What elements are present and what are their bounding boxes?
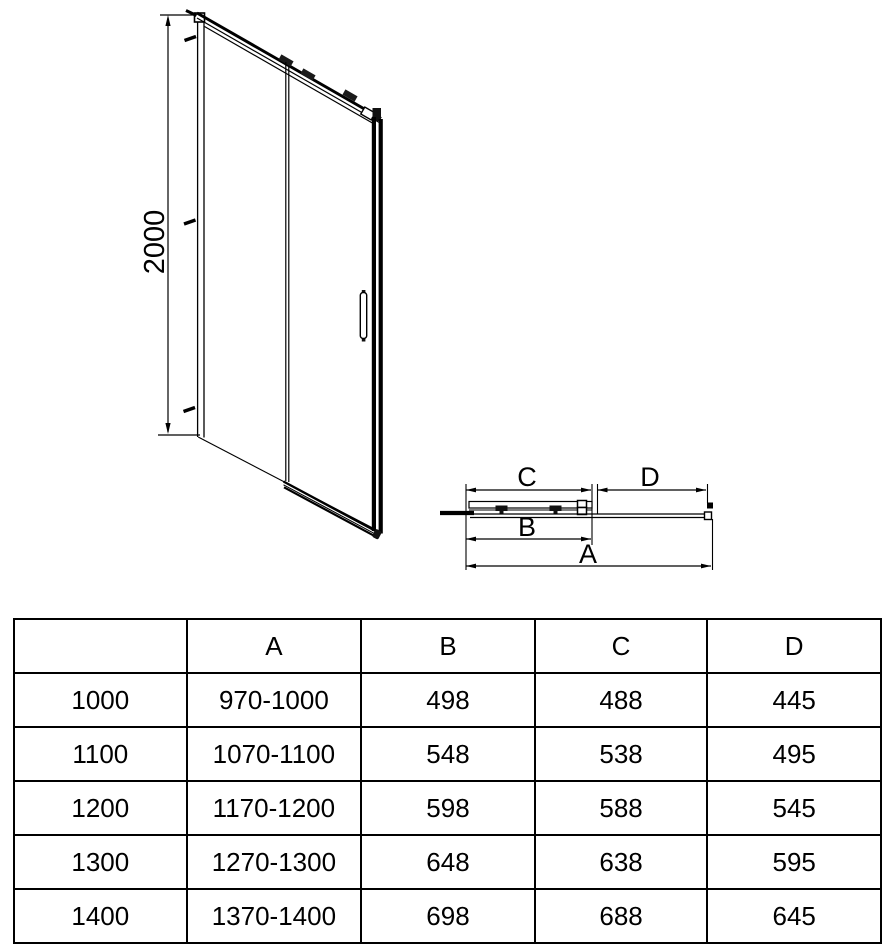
height-dimension-label: 2000 [139, 210, 171, 275]
col-header-c: C [535, 619, 708, 673]
plan-roller-icon [496, 506, 508, 515]
cell-size: 1400 [14, 889, 187, 943]
table-row: 1200 1170-1200 598 588 545 [14, 781, 881, 835]
table-row: 1000 970-1000 498 488 445 [14, 673, 881, 727]
col-header-d: D [707, 619, 881, 673]
door-handle [360, 290, 366, 342]
cell-b: 648 [361, 835, 535, 889]
table-row: 1400 1370-1400 698 688 645 [14, 889, 881, 943]
cell-b: 498 [361, 673, 535, 727]
plan-right-wall-profile [707, 503, 713, 509]
cell-a: 970-1000 [187, 673, 362, 727]
cell-size: 1000 [14, 673, 187, 727]
size-table: A B C D 1000 970-1000 498 488 445 1100 1… [13, 618, 882, 944]
table-header-row: A B C D [14, 619, 881, 673]
table-row: 1300 1270-1300 648 638 595 [14, 835, 881, 889]
cell-b: 548 [361, 727, 535, 781]
dimension-b: B [466, 512, 591, 542]
cell-b: 598 [361, 781, 535, 835]
dim-c-label: C [517, 462, 537, 492]
spec-sheet-page: { "front_view": { "height_dimension": "2… [0, 0, 893, 948]
col-header-size [14, 619, 187, 673]
cell-d: 495 [707, 727, 881, 781]
plan-view: C D [440, 462, 713, 570]
dimension-d: D [598, 462, 707, 492]
cell-c: 538 [535, 727, 708, 781]
dim-d-label: D [640, 462, 660, 492]
cell-c: 588 [535, 781, 708, 835]
panel-divider [286, 62, 289, 482]
cell-d: 595 [707, 835, 881, 889]
cell-size: 1100 [14, 727, 187, 781]
wall-bracket-middle [184, 220, 196, 224]
left-wall-profile [184, 11, 205, 438]
cell-size: 1300 [14, 835, 187, 889]
front-view: 2000 [139, 11, 383, 540]
cell-a: 1370-1400 [187, 889, 362, 943]
table-row: 1100 1070-1100 548 538 495 [14, 727, 881, 781]
wall-bracket-bottom [184, 408, 196, 412]
technical-drawing: 2000 [0, 0, 893, 610]
plan-roller-icon [550, 506, 562, 515]
dimension-a: A [466, 539, 711, 569]
wall-bracket-top [185, 37, 197, 41]
cell-size: 1200 [14, 781, 187, 835]
cell-a: 1070-1100 [187, 727, 362, 781]
col-header-b: B [361, 619, 535, 673]
height-dimension: 2000 [139, 15, 200, 435]
dim-a-label: A [579, 539, 597, 569]
right-frame-profile [372, 117, 383, 534]
dimension-c: C [466, 462, 591, 492]
bottom-rail [198, 437, 382, 540]
dim-b-label: B [518, 512, 536, 542]
cell-a: 1170-1200 [187, 781, 362, 835]
col-header-a: A [187, 619, 362, 673]
cell-d: 645 [707, 889, 881, 943]
cell-d: 545 [707, 781, 881, 835]
cell-c: 688 [535, 889, 708, 943]
cell-d: 445 [707, 673, 881, 727]
plan-door-bracket [578, 501, 587, 515]
cell-c: 488 [535, 673, 708, 727]
cell-b: 698 [361, 889, 535, 943]
cell-c: 638 [535, 835, 708, 889]
cell-a: 1270-1300 [187, 835, 362, 889]
